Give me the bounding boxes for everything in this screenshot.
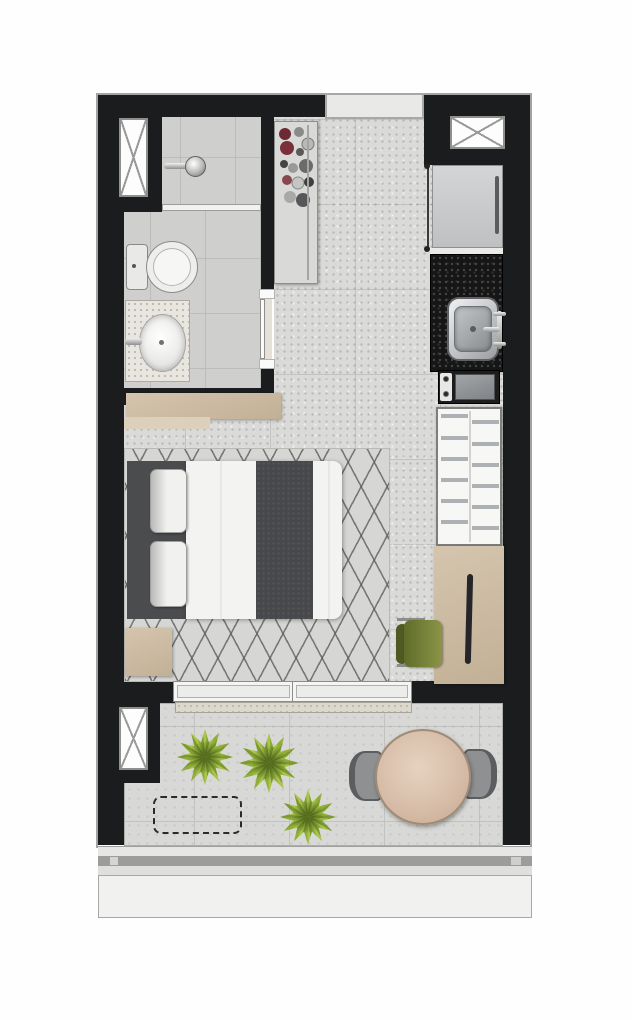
pillow-right bbox=[150, 541, 187, 607]
fridge-door-swing-line bbox=[427, 166, 429, 249]
toilet-flush-button bbox=[132, 264, 136, 268]
wood-console bbox=[126, 393, 281, 419]
sliding-door-panel-left bbox=[173, 681, 294, 702]
shelf-unit bbox=[436, 407, 502, 546]
sink-drain bbox=[470, 326, 476, 332]
shower-glass-partition bbox=[162, 204, 261, 211]
railing-post-left bbox=[110, 857, 118, 865]
dashed-planting-zone bbox=[153, 796, 242, 834]
sliding-door-panel-right bbox=[292, 681, 412, 702]
desk-chair-icon bbox=[404, 620, 442, 667]
shower-floor bbox=[162, 117, 261, 204]
shelf-center-divider bbox=[469, 411, 471, 542]
basin-faucet-icon bbox=[125, 338, 142, 345]
balcony-window bbox=[119, 707, 148, 770]
floor-plan-canvas bbox=[0, 0, 632, 1020]
wardrobe-door-divider bbox=[307, 125, 309, 280]
door-jamb-bottom bbox=[259, 359, 275, 369]
door-sill bbox=[175, 702, 412, 713]
wall-bath-upper bbox=[261, 117, 274, 290]
cooktop-glass bbox=[455, 374, 495, 400]
pillow-left bbox=[150, 469, 187, 533]
shower-head-icon bbox=[185, 156, 206, 177]
cooktop-knob-1 bbox=[443, 376, 449, 382]
shelf-bars-right bbox=[472, 413, 499, 540]
faucet-handle-top bbox=[493, 312, 506, 316]
console-lower-shelf bbox=[124, 417, 210, 429]
toilet-tank bbox=[126, 244, 148, 290]
entry-door bbox=[325, 93, 424, 119]
outer-ledge bbox=[98, 875, 532, 918]
railing-outer-strip bbox=[98, 866, 532, 875]
shelf-bars-left bbox=[441, 413, 468, 540]
railing-inner-strip bbox=[98, 846, 532, 856]
wardrobe bbox=[274, 121, 318, 284]
kitchen-window bbox=[450, 116, 505, 149]
basin-drain bbox=[159, 340, 164, 345]
railing-post-right bbox=[511, 857, 521, 865]
kitchen-faucet-spout bbox=[483, 327, 500, 332]
bathroom-window bbox=[119, 118, 148, 197]
refrigerator-handle bbox=[495, 176, 499, 234]
railing-bar bbox=[98, 856, 532, 866]
balcony-table-icon bbox=[375, 729, 471, 825]
toilet-icon bbox=[146, 241, 198, 293]
wardrobe-clothes-icon bbox=[275, 122, 319, 285]
refrigerator-icon bbox=[432, 165, 503, 248]
fridge-hinge-top bbox=[424, 163, 430, 169]
pocket-door-leaf bbox=[260, 299, 265, 359]
door-jamb-top bbox=[259, 289, 275, 299]
cooktop-knob-2 bbox=[443, 391, 449, 397]
bed-runner bbox=[256, 461, 313, 619]
faucet-handle-bottom bbox=[493, 342, 506, 346]
nightstand bbox=[125, 628, 172, 676]
wall-balcony-right-block bbox=[503, 681, 530, 845]
